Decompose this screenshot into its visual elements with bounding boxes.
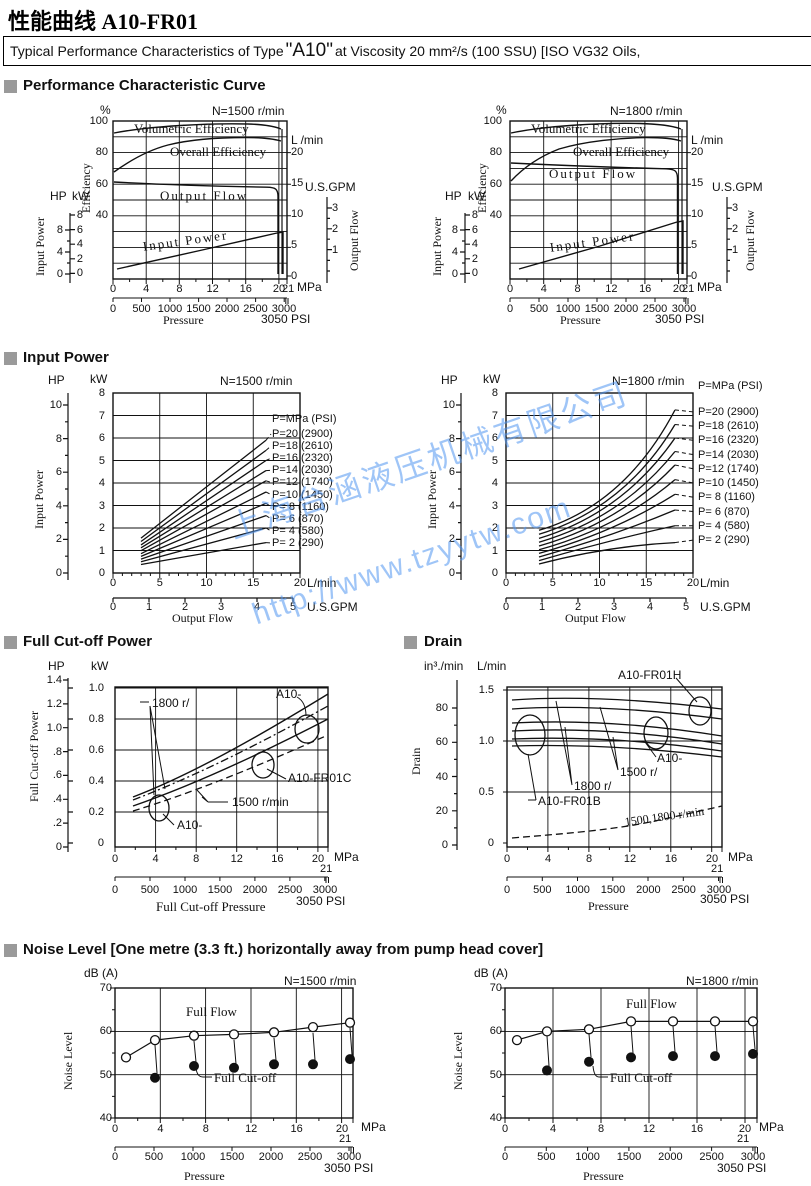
tick-label: 20 [291,146,303,158]
pressure-legend-row: P=20 (2900) [698,406,759,418]
tick-label: 0 [99,567,105,579]
drain-axis-title: Drain [410,748,423,775]
tick-label: 500 [141,884,159,896]
lmin-tick-labels: 20151050 [291,152,315,276]
tick-label: 500 [530,303,548,315]
mpa-unit: MPa [297,281,322,294]
hp-unit: HP [441,374,458,387]
pressure-axis-title: Pressure [184,1170,225,1183]
in3-tick-labels: 806040200 [424,708,448,845]
tick-label: 6 [99,432,105,444]
psi-3050-label: 3050 PSI [700,893,749,906]
tick-label: 60 [100,1025,112,1037]
tick-label: 0 [110,303,116,315]
section-bullet [4,636,17,649]
mpa-unit: MPa [728,851,753,864]
kw-tick-labels: 86420 [460,215,478,273]
kw-unit: kW [91,660,108,673]
tick-label: 500 [537,1151,555,1163]
tick-label: 3 [332,202,338,214]
tick-label: 4 [153,853,159,865]
tick-label: 10 [50,399,62,411]
pressure-legend-header: P=MPa (PSI) [698,380,763,392]
tick-label: 20 [687,577,699,589]
pressure-axis-title: Pressure [163,314,204,327]
tick-label: 8 [193,853,199,865]
kw-tick-labels: 876543210 [85,393,105,573]
subtitle-type: "A10" [286,40,333,62]
mpa-21-label: 21 [320,863,332,875]
page-title: 性能曲线 A10-FR01 [8,4,198,36]
tick-label: 0 [503,601,509,613]
tick-label: 60 [490,178,502,190]
tick-label: 4 [492,477,498,489]
tick-label: 2500 [671,884,695,896]
input-power-axis-title: Input Power [34,217,47,276]
tick-label: 5 [683,601,689,613]
kw-unit: kW [483,373,500,386]
tick-label: 12 [624,853,636,865]
catalog-page: 性能曲线 A10-FR01 Typical Performance Charac… [0,0,811,1186]
tick-label: 100 [484,115,502,127]
pressure-legend-row: P=18 (2610) [272,440,333,452]
tick-label: 8 [176,283,182,295]
tick-label: 8 [492,387,498,399]
mpa-21-label: 21 [339,1133,351,1145]
dba-unit: dB (A) [84,967,118,980]
tick-label: 0 [502,1151,508,1163]
tick-label: 0 [77,267,83,279]
annotation-a10: A10- [657,752,682,765]
tick-label: 4 [77,238,83,250]
subtitle-box: Typical Performance Characteristics of T… [3,36,811,66]
tick-label: 4 [157,1123,163,1135]
section-bullet [4,80,17,93]
annotation-1800: 1800 r/ [574,780,611,793]
tick-label: 6 [472,224,478,236]
tick-label: 0 [112,1123,118,1135]
tick-label: 1500 [208,884,232,896]
tick-label: 12 [245,1123,257,1135]
volumetric-efficiency-label: Volumetric Efficiency [134,122,249,136]
full-flow-label: Full Flow [186,1005,237,1019]
db-tick-labels: 70605040 [88,988,112,1118]
kw-unit: kW [90,373,107,386]
tick-label: 80 [436,702,448,714]
tick-label: 500 [533,884,551,896]
tick-label: 0 [449,567,455,579]
tick-label: 8 [598,1123,604,1135]
annotation-1500: 1500 r/min [232,796,289,809]
pressure-legend-row: P=16 (2320) [272,452,333,464]
tick-label: .6 [53,769,62,781]
tick-label: 10 [443,399,455,411]
tick-label: 0 [57,268,63,280]
tick-label: 1000 [173,884,197,896]
tick-label: 16 [639,283,651,295]
tick-label: .2 [53,817,62,829]
tick-label: 1.4 [47,674,62,686]
tick-label: 0 [503,577,509,589]
tick-label: 1.0 [479,735,494,747]
lmin-unit: L/min [700,577,729,590]
tick-label: 1000 [565,884,589,896]
tick-label: 3 [99,500,105,512]
tick-label: 12 [206,283,218,295]
annotation-a10-fr01c: A10-FR01C [288,772,351,785]
psi-3050-label: 3050 PSI [261,313,310,326]
hp-unit: HP [445,190,462,203]
tick-label: 500 [145,1151,163,1163]
tick-label: 70 [490,982,502,994]
tick-label: 2000 [215,303,239,315]
tick-label: 0 [110,283,116,295]
input-power-axis-title: Input Power [33,470,46,529]
tick-label: 2 [99,522,105,534]
tick-label: 50 [490,1069,502,1081]
speed-label: N=1800 r/min [686,975,758,988]
tick-label: 15 [247,577,259,589]
mpa-21-label: 21 [682,283,694,295]
output-flow-axis-title: Output Flow [744,210,757,271]
tick-label: 7 [99,410,105,422]
tick-label: 0 [472,267,478,279]
tick-label: 6 [56,466,62,478]
pressure-legend: P=20 (2900)P=18 (2610)P=16 (2320)P=14 (2… [698,412,768,540]
full-flow-points [122,1018,355,1062]
tick-label: 100 [90,115,108,127]
tick-label: 2000 [636,884,660,896]
tick-label: 4 [550,1123,556,1135]
tick-label: 20 [436,805,448,817]
tick-label: 15 [640,577,652,589]
tick-label: 40 [490,1112,502,1124]
tick-label: 80 [490,146,502,158]
tick-label: 0.6 [89,744,104,756]
tick-label: 20 [691,146,703,158]
tick-label: 4 [452,246,458,258]
mpa-unit: MPa [334,851,359,864]
input-power-axis-title: Input Power [431,217,444,276]
tick-label: 16 [240,283,252,295]
tick-label: 2000 [614,303,638,315]
selection-blob [515,715,545,755]
tick-label: 16 [665,853,677,865]
section-title-noise: Noise Level [One metre (3.3 ft.) horizon… [23,941,543,958]
annotation-a10-top: A10- [276,688,301,701]
tick-label: 1500 [601,884,625,896]
tick-label: 8 [56,433,62,445]
tick-label: 1.0 [47,722,62,734]
fc-power-axis-title: Full Cut-off Power [28,711,41,802]
pressure-legend-row: P=10 (1450) [698,477,759,489]
annotation-1500: 1500 r/ [620,766,657,779]
section-title-full-cutoff: Full Cut-off Power [23,633,152,650]
mpa-unit: MPa [759,1121,784,1134]
hp-tick-labels: 840 [45,230,63,274]
volumetric-efficiency-label: Volumetric Efficiency [531,122,646,136]
tick-label: 0 [56,841,62,853]
tick-label: 70 [100,982,112,994]
tick-label: 4 [541,283,547,295]
tick-label: 4 [143,283,149,295]
mpa-unit: MPa [361,1121,386,1134]
tick-label: 15 [691,177,703,189]
tick-label: 5 [691,239,697,251]
tick-label: 3 [492,500,498,512]
tick-label: 0 [112,884,118,896]
noise-axis-title: Noise Level [452,1032,465,1090]
tick-label: 2000 [259,1151,283,1163]
tick-label: 4 [449,500,455,512]
pressure-legend-row: P= 8 (1160) [698,491,755,503]
tick-label: 0 [507,303,513,315]
fc-pressure-axis-title: Full Cut-off Pressure [156,900,266,914]
tick-label: 2500 [298,1151,322,1163]
tick-label: 4 [647,601,653,613]
hp-unit: HP [50,190,67,203]
tick-label: 3 [732,202,738,214]
tick-label: 1000 [181,1151,205,1163]
tick-label: 0 [488,837,494,849]
tick-label: 0 [56,567,62,579]
output-flow-axis-title: Output Flow [172,612,233,625]
tick-label: 10 [200,577,212,589]
section-title-input-power: Input Power [23,349,109,366]
mpa-21-label: 21 [737,1133,749,1145]
tick-label: 4 [99,477,105,489]
tick-label: 8 [99,387,105,399]
pressure-legend-header: P=MPa (PSI) [272,413,337,425]
tick-label: 1.2 [47,698,62,710]
db-tick-labels: 70605040 [478,988,502,1118]
tick-label: 60 [96,178,108,190]
tick-label: 1 [539,601,545,613]
tick-label: 0 [502,1123,508,1135]
tick-label: .4 [53,793,62,805]
lmin-unit: L/min [477,660,506,673]
mpa-unit: MPa [697,281,722,294]
tick-label: 8 [586,853,592,865]
pressure-legend-row: P=16 (2320) [698,434,759,446]
tick-label: 8 [57,224,63,236]
gpm-unit: U.S.GPM [700,601,751,614]
section-bullet [4,944,17,957]
tick-label: 4 [57,246,63,258]
tick-label: 10 [291,208,303,220]
tick-label: 0.8 [89,713,104,725]
tick-label: 0 [98,837,104,849]
dba-unit: dB (A) [474,967,508,980]
tick-label: 2000 [658,1151,682,1163]
full-cutoff-label: Full Cut-off [610,1071,672,1085]
tick-label: 0 [442,839,448,851]
pressure-axis-title: Pressure [588,900,629,913]
tick-label: 5 [157,577,163,589]
tick-label: 5 [99,455,105,467]
tick-label: 2 [732,223,738,235]
tick-label: 0 [504,884,510,896]
tick-label: 16 [271,853,283,865]
pressure-legend-row: P=18 (2610) [698,420,759,432]
tick-label: 6 [77,224,83,236]
tick-label: 0.4 [89,775,104,787]
mpa-21-label: 21 [711,863,723,875]
kw-tick-labels: 86420 [65,215,83,273]
tick-label: 0 [112,853,118,865]
full-cutoff-label: Full Cut-off [214,1071,276,1085]
tick-label: 60 [490,1025,502,1037]
tick-label: 8 [203,1123,209,1135]
pressure-legend-row: P=14 (2030) [698,449,759,461]
section-bullet [4,352,17,365]
tick-label: 60 [436,736,448,748]
psi-3050-label: 3050 PSI [324,1162,373,1175]
tick-label: 0.2 [89,806,104,818]
tick-label: 0 [110,601,116,613]
tick-label: 15 [291,177,303,189]
tick-label: 1.5 [479,684,494,696]
tick-label: .8 [53,746,62,758]
subtitle-prefix: Typical Performance Characteristics of T… [10,43,284,59]
tick-label: 1 [332,244,338,256]
tick-label: 500 [132,303,150,315]
tick-label: 16 [691,1123,703,1135]
annotation-a10-fr01b: A10-FR01B [538,795,601,808]
speed-label: N=1500 r/min [284,975,356,988]
lmin-tick-labels: 20151050 [691,152,715,276]
noise-axis-title: Noise Level [62,1032,75,1090]
tick-label: 12 [231,853,243,865]
psi-3050-label: 3050 PSI [717,1162,766,1175]
tick-label: 1 [146,601,152,613]
tick-label: 12 [605,283,617,295]
gpm-unit: U.S.GPM [305,181,356,194]
tick-label: 1500 [220,1151,244,1163]
tick-label: 40 [436,771,448,783]
tick-label: 1 [99,545,105,557]
full-flow-label: Full Flow [626,997,677,1011]
efficiency-axis-title: Efficiency [80,163,93,213]
hp-unit: HP [48,660,65,673]
tick-label: 0 [492,567,498,579]
a10-fr01c-1800-curve [133,706,328,800]
tick-label: 10 [593,577,605,589]
subtitle-suffix: at Viscosity 20 mm²/s (100 SSU) [ISO VG3… [335,43,641,59]
tick-label: 40 [100,1112,112,1124]
tick-label: 12 [643,1123,655,1135]
tick-label: 2 [472,253,478,265]
output-flow-axis-title: Output Flow [348,210,361,271]
chart-lines-layer [0,0,811,1186]
tick-label: 5 [291,239,297,251]
output-flow-axis-title: Output Flow [565,612,626,625]
tick-label: 0 [110,577,116,589]
section-bullet [404,636,417,649]
tick-label: 2 [56,533,62,545]
a10-1500-curve [133,719,328,806]
tick-label: 0 [504,853,510,865]
mpa-21-label: 21 [282,283,294,295]
tick-label: 80 [96,146,108,158]
tick-label: 1.0 [89,682,104,694]
in3-unit: in³./min [424,660,463,673]
tick-label: 10 [691,208,703,220]
tick-label: 2 [332,223,338,235]
pressure-legend-row: P=20 (2900) [272,428,333,440]
speed-label: N=1500 r/min [212,105,284,118]
tick-label: 4 [545,853,551,865]
hp-unit: HP [48,374,65,387]
tick-label: 2000 [243,884,267,896]
tick-label: 0 [507,283,513,295]
tick-label: 5 [550,577,556,589]
pressure-legend-row: P= 2 (290) [272,537,324,549]
overall-efficiency-label: Overall Efficiency [573,145,669,159]
pressure-axis-title: Pressure [560,314,601,327]
lmin-tick-labels: 1.51.00.50 [468,690,494,843]
tick-label: 8 [452,224,458,236]
tick-label: 50 [100,1069,112,1081]
pressure-legend-row: P= 4 (580) [698,520,750,532]
psi-3050-label: 3050 PSI [296,895,345,908]
tick-label: 4 [472,238,478,250]
tick-label: 4 [56,500,62,512]
annotation-a10-bottom: A10- [177,819,202,832]
efficiency-axis-title: Efficiency [476,163,489,213]
section-title-drain: Drain [424,633,462,650]
tick-label: 0 [112,1151,118,1163]
tick-label: 16 [290,1123,302,1135]
tick-label: 0.5 [479,786,494,798]
speed-label: N=1500 r/min [220,375,292,388]
gpm-unit: U.S.GPM [712,181,763,194]
pressure-legend-row: P= 2 (290) [698,534,750,546]
tick-label: 2 [77,253,83,265]
overall-efficiency-label: Overall Efficiency [170,145,266,159]
annotation-a10-fr01h: A10-FR01H [618,669,681,682]
tick-label: 40 [490,209,502,221]
pressure-legend-row: P= 6 (870) [698,506,750,518]
output-flow-label: Output Flow [549,167,637,181]
annotation-1800: 1800 r/ [152,697,189,710]
pressure-legend-row: P=12 (1740) [698,463,759,475]
speed-label: N=1800 r/min [610,105,682,118]
tick-label: 40 [96,209,108,221]
selection-blob [689,697,711,725]
selection-blob [252,752,274,778]
tick-label: 0 [452,268,458,280]
tick-label: 1 [732,244,738,256]
output-flow-label: Output Flow [160,189,248,203]
kw-tick-labels: 1.00.80.60.40.20 [78,688,104,843]
pressure-axis-title: Pressure [583,1170,624,1183]
psi-3050-label: 3050 PSI [655,313,704,326]
tick-label: 1500 [617,1151,641,1163]
tick-label: 8 [575,283,581,295]
tick-label: 1000 [575,1151,599,1163]
section-title-performance: Performance Characteristic Curve [23,77,266,94]
selection-blob [644,717,668,749]
